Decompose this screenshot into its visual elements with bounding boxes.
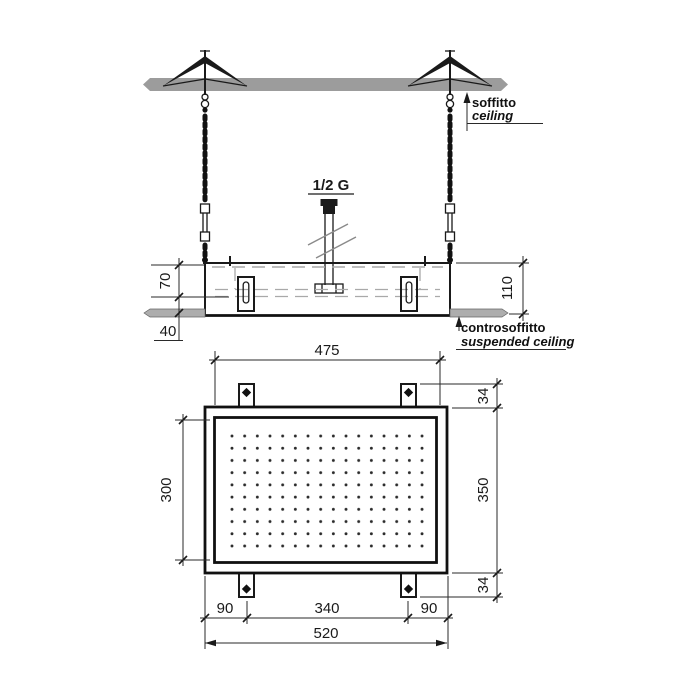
svg-text:34: 34 <box>475 388 492 405</box>
svg-text:110: 110 <box>499 276 516 300</box>
chain-left <box>201 94 210 263</box>
suspended-ceiling-label: controsoffitto suspended ceiling <box>456 316 575 350</box>
fixing-tab-top-right <box>401 384 416 407</box>
dim-300: 300 <box>158 414 210 566</box>
dim-34-bottom: 34 <box>420 577 503 601</box>
mounting-bracket-right <box>401 277 417 311</box>
suspended-ceiling-left <box>144 309 205 317</box>
dim-350: 350 <box>452 477 503 577</box>
svg-text:ceiling: ceiling <box>472 108 513 123</box>
connection-label: 1/2 G <box>313 177 350 194</box>
fixing-tab-top-left <box>239 384 254 407</box>
supply-pipe <box>308 199 356 293</box>
dim-475: 475 <box>209 342 446 405</box>
chain-right <box>446 94 455 263</box>
svg-text:40: 40 <box>160 323 177 340</box>
pipe-break-symbol <box>316 237 356 258</box>
fixing-tab-bottom-left <box>239 573 254 597</box>
dim-520: 520 <box>205 625 447 646</box>
svg-text:350: 350 <box>475 477 492 502</box>
fixing-tab-bottom-right <box>401 573 416 597</box>
dim-90-left: 90 <box>217 600 234 617</box>
pipe-break-symbol <box>308 224 348 245</box>
svg-text:520: 520 <box>313 625 338 642</box>
technical-drawing-page: 1/2 G <box>0 0 700 700</box>
svg-text:34: 34 <box>475 577 492 594</box>
elevation-view: 1/2 G <box>143 50 574 350</box>
plan-view: 475 34 350 34 300 <box>158 342 503 649</box>
nozzle-grid <box>225 429 427 551</box>
svg-text:controsoffitto: controsoffitto <box>461 320 546 335</box>
svg-text:475: 475 <box>314 342 339 359</box>
svg-text:70: 70 <box>157 273 174 290</box>
dim-90-right: 90 <box>421 600 438 617</box>
shower-installation-drawing: 1/2 G <box>0 0 700 700</box>
plenum-box <box>203 256 452 316</box>
ceiling-label: soffitto ceiling <box>464 92 544 131</box>
mounting-bracket-left <box>238 277 254 311</box>
dim-340: 340 <box>314 600 339 617</box>
svg-text:300: 300 <box>158 477 175 502</box>
suspended-ceiling-right <box>450 309 508 317</box>
svg-text:suspended ceiling: suspended ceiling <box>461 334 574 349</box>
